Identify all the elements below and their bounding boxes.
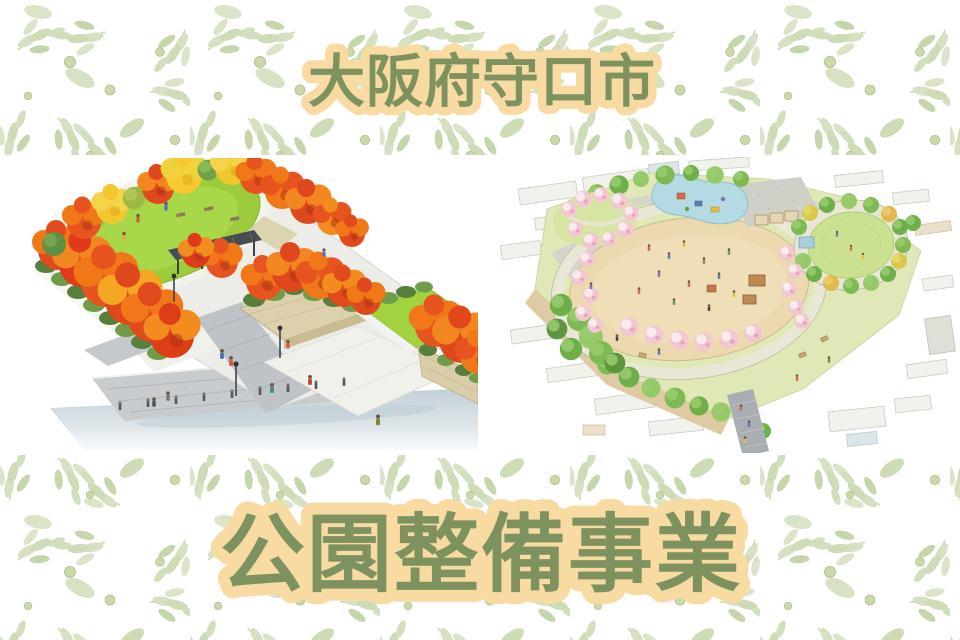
illustration-site-plan [498,157,960,453]
banner-canvas: 大阪府守口市 公園整備事業 [0,0,960,640]
illustration-autumn-park [26,158,478,450]
